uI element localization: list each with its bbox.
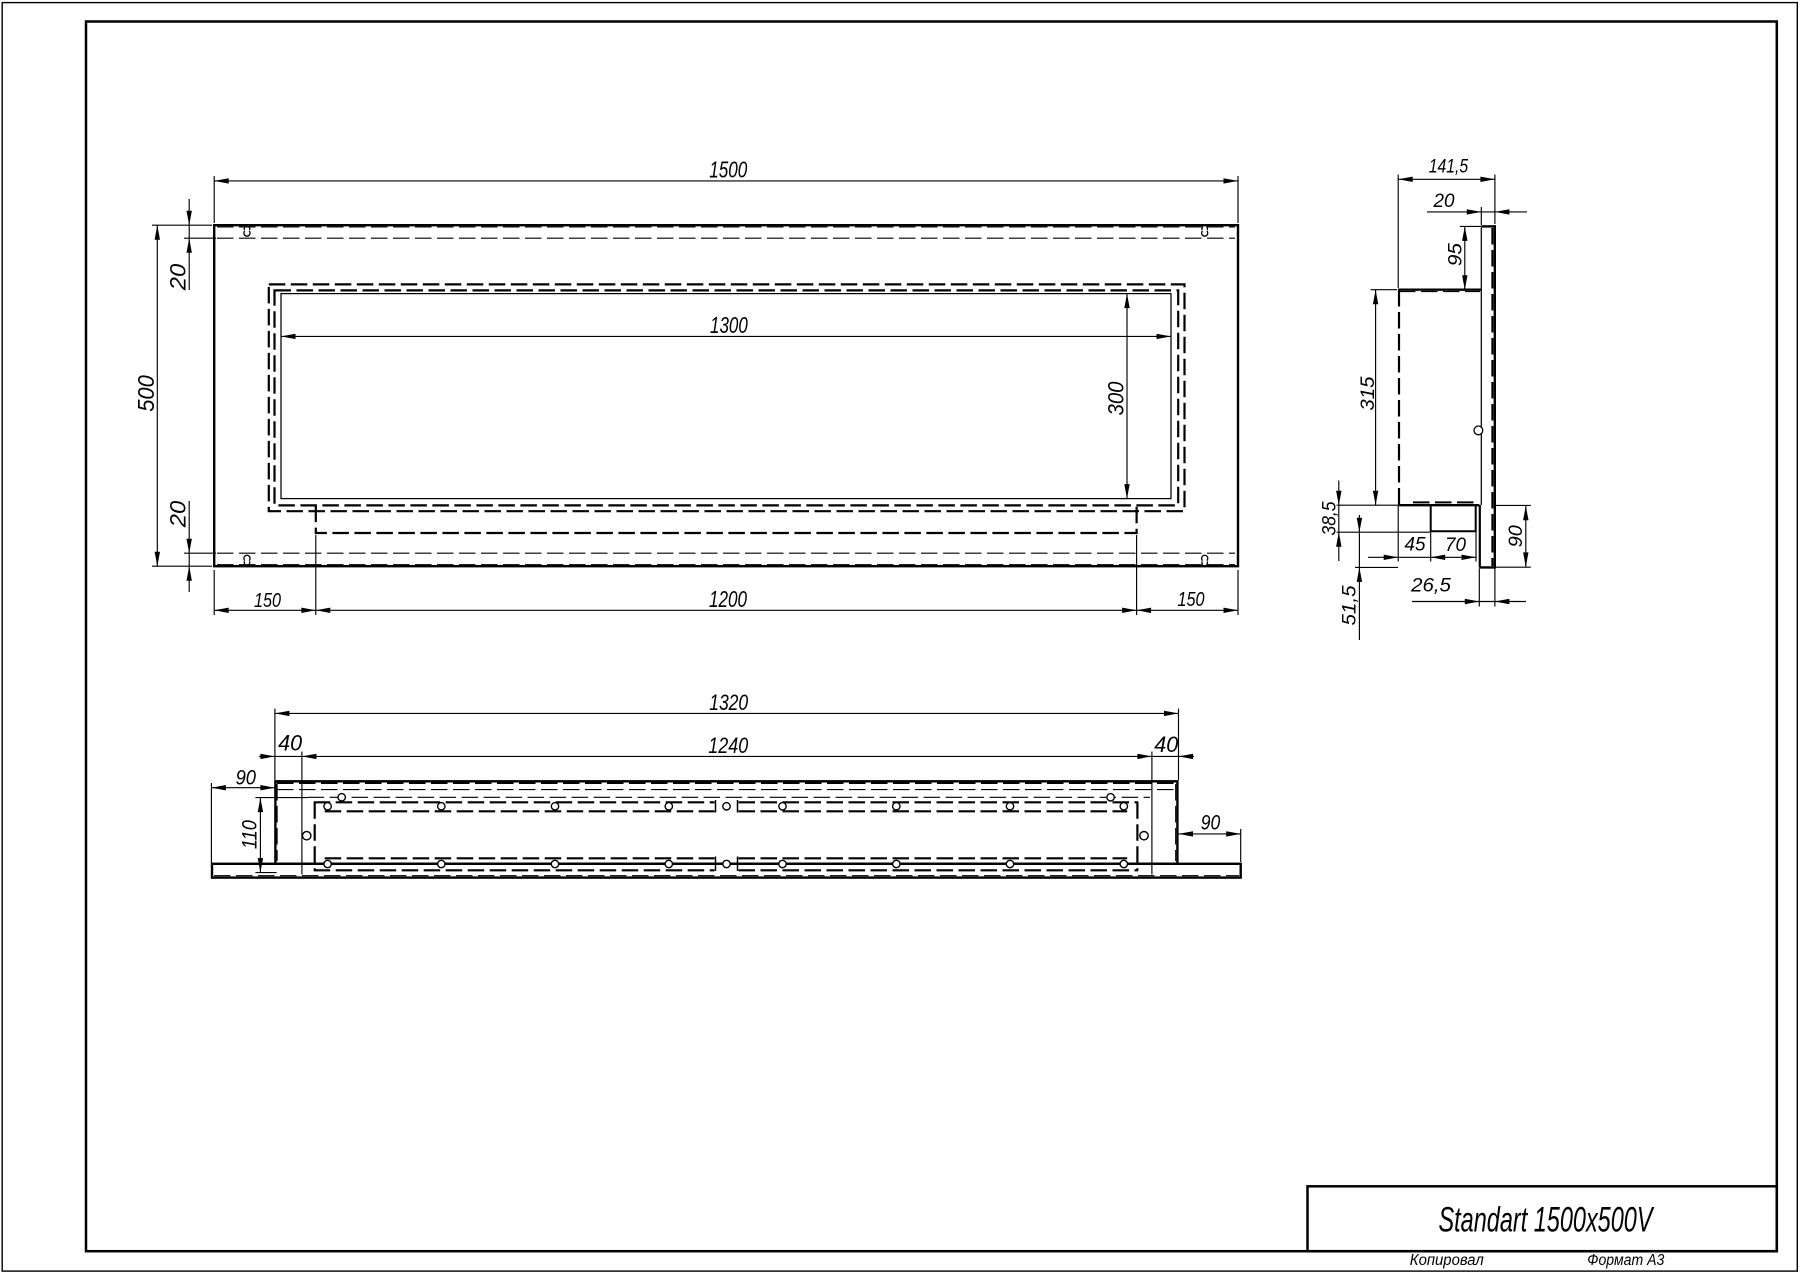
svg-text:20: 20 <box>166 263 191 291</box>
svg-text:Копировал: Копировал <box>1410 1252 1484 1269</box>
svg-text:1200: 1200 <box>709 586 747 612</box>
svg-text:40: 40 <box>1154 732 1179 757</box>
svg-text:51,5: 51,5 <box>1339 585 1360 625</box>
svg-text:300: 300 <box>1103 381 1128 416</box>
svg-text:500: 500 <box>133 375 159 412</box>
svg-text:1300: 1300 <box>710 312 748 338</box>
svg-text:90: 90 <box>236 767 257 790</box>
svg-text:38,5: 38,5 <box>1319 501 1340 535</box>
svg-text:45: 45 <box>1405 535 1426 556</box>
svg-text:95: 95 <box>1445 243 1466 266</box>
svg-text:90: 90 <box>1506 525 1527 547</box>
svg-text:110: 110 <box>238 820 261 849</box>
svg-text:1240: 1240 <box>708 733 749 758</box>
svg-text:20: 20 <box>166 500 191 528</box>
svg-text:Standart 1500x500V: Standart 1500x500V <box>1439 1201 1655 1240</box>
svg-text:20: 20 <box>1433 191 1455 212</box>
svg-text:315: 315 <box>1358 376 1379 410</box>
svg-text:26,5: 26,5 <box>1410 576 1451 597</box>
svg-text:1500: 1500 <box>709 157 747 183</box>
svg-text:70: 70 <box>1445 535 1466 556</box>
svg-text:150: 150 <box>1178 589 1205 611</box>
svg-text:150: 150 <box>254 590 281 612</box>
svg-text:Формат А3: Формат А3 <box>1587 1252 1664 1269</box>
svg-text:1320: 1320 <box>709 690 749 715</box>
svg-text:90: 90 <box>1201 811 1221 834</box>
svg-text:141,5: 141,5 <box>1429 156 1469 177</box>
svg-text:40: 40 <box>278 731 303 756</box>
